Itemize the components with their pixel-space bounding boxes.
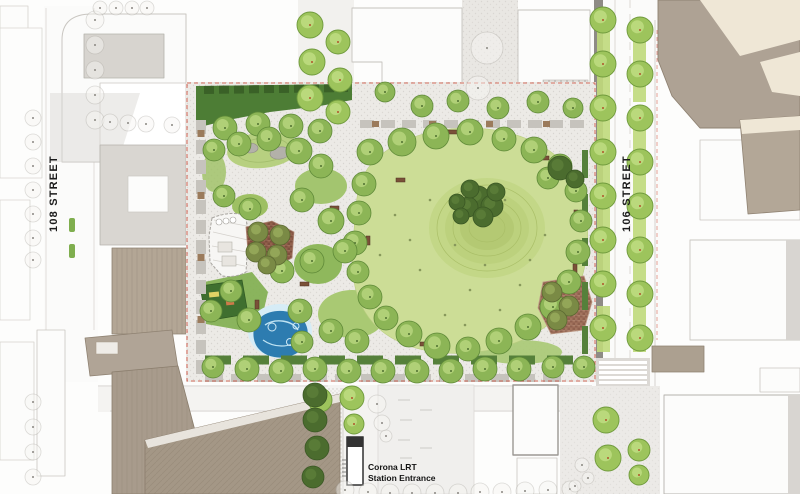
- station-label-line2: Station Entrance: [368, 473, 436, 483]
- street-west-label: 108 STREET: [48, 155, 60, 232]
- curb-planter: [69, 218, 75, 232]
- curb-planter: [69, 244, 75, 258]
- street-east-label: 106 STREET: [621, 155, 633, 232]
- station-label-line1: Corona LRT: [368, 462, 417, 472]
- crosswalk: [596, 358, 650, 386]
- site-plan: 108 STREET 106 STREET Corona LRT Station…: [0, 0, 800, 494]
- site-plan-canvas: 108 STREET 106 STREET Corona LRT Station…: [0, 0, 800, 494]
- pavilion: [209, 213, 248, 276]
